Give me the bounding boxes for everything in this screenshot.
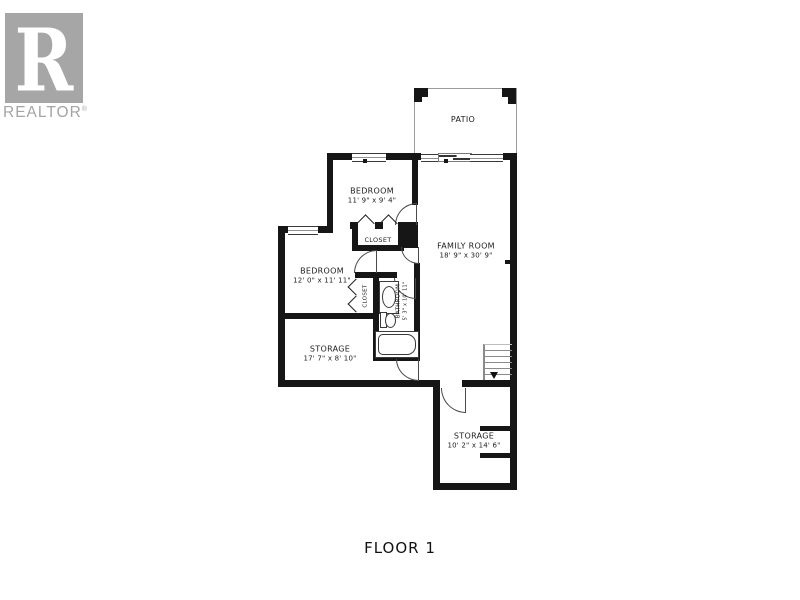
room-name: FAMILY ROOM bbox=[437, 242, 495, 252]
window bbox=[421, 154, 438, 162]
wall-segment bbox=[327, 153, 333, 233]
bifold-door-icon bbox=[356, 214, 374, 232]
room-label-bedroom-top: BEDROOM 11' 9" x 9' 4" bbox=[348, 187, 396, 206]
room-dimensions: 12' 0" x 11' 11" bbox=[293, 277, 351, 286]
room-label-family-room: FAMILY ROOM 18' 9" x 30' 9" bbox=[437, 242, 495, 261]
sink-icon bbox=[382, 286, 396, 308]
bathtub-inner bbox=[378, 334, 416, 355]
room-label-closet-bedroom: CLOSET bbox=[363, 284, 370, 307]
wall-segment bbox=[281, 380, 440, 387]
door-arc-bedroom-top bbox=[395, 203, 417, 225]
wall-tick bbox=[505, 260, 510, 264]
wall-segment bbox=[433, 387, 440, 490]
room-name: STORAGE bbox=[303, 345, 356, 355]
window bbox=[288, 226, 318, 235]
realtor-logo-letter: R bbox=[15, 18, 74, 103]
registered-mark: ® bbox=[82, 106, 87, 113]
door-arc-storage-left bbox=[396, 359, 419, 381]
room-label-storage-left: STORAGE 17' 7" x 8' 10" bbox=[303, 345, 356, 364]
room-name: CLOSET bbox=[363, 284, 370, 307]
room-label-bedroom-left: BEDROOM 12' 0" x 11' 11" bbox=[293, 267, 351, 286]
wall-segment bbox=[510, 153, 517, 490]
room-label-storage-bottom: STORAGE 10' 2" x 14' 6" bbox=[447, 432, 500, 451]
wall-segment bbox=[433, 483, 517, 490]
wall-tick bbox=[363, 159, 367, 163]
wall-segment bbox=[281, 313, 375, 319]
floor-plan-page: R REALTOR® bbox=[0, 0, 800, 600]
wall-segment bbox=[352, 245, 404, 251]
wall-segment bbox=[508, 88, 516, 104]
realtor-logo-wordmark: REALTOR® bbox=[3, 104, 87, 122]
room-label-bathroom: BATHROOM 5' 3" x 10' 11" bbox=[395, 282, 408, 321]
wall-segment bbox=[414, 88, 422, 102]
room-name: PATIO bbox=[451, 115, 475, 125]
room-name: BEDROOM bbox=[348, 187, 396, 197]
window bbox=[470, 154, 503, 162]
door-arc-storage-bottom bbox=[441, 388, 466, 413]
door-arc-hall bbox=[401, 247, 419, 264]
realtor-brand-text: REALTOR bbox=[3, 104, 82, 121]
room-dimensions: 18' 9" x 30' 9" bbox=[437, 252, 495, 261]
room-name: BEDROOM bbox=[293, 267, 351, 277]
wall-segment bbox=[462, 380, 517, 387]
bifold-door-icon bbox=[379, 214, 397, 232]
room-name: STORAGE bbox=[447, 432, 500, 442]
room-dimensions: 11' 9" x 9' 4" bbox=[348, 197, 396, 206]
room-name: BATHROOM bbox=[395, 282, 402, 321]
wall-segment bbox=[480, 426, 511, 431]
window bbox=[352, 153, 386, 162]
room-name: CLOSET bbox=[364, 236, 391, 244]
wall-segment bbox=[412, 153, 418, 205]
floor-title: FLOOR 1 bbox=[364, 539, 436, 557]
wall-tick bbox=[444, 159, 448, 163]
toilet-icon bbox=[385, 313, 396, 328]
wall-segment bbox=[480, 453, 511, 458]
stair-direction-arrow-icon bbox=[490, 372, 498, 379]
door-arc-bedroom-left bbox=[354, 250, 377, 273]
room-dimensions: 5' 3" x 10' 11" bbox=[402, 282, 408, 321]
realtor-logo: R bbox=[5, 13, 83, 103]
room-label-closet-hall: CLOSET bbox=[364, 236, 391, 244]
wall-segment bbox=[278, 226, 285, 387]
room-dimensions: 10' 2" x 14' 6" bbox=[447, 442, 500, 451]
room-dimensions: 17' 7" x 8' 10" bbox=[303, 355, 356, 364]
room-label-patio: PATIO bbox=[451, 115, 475, 125]
